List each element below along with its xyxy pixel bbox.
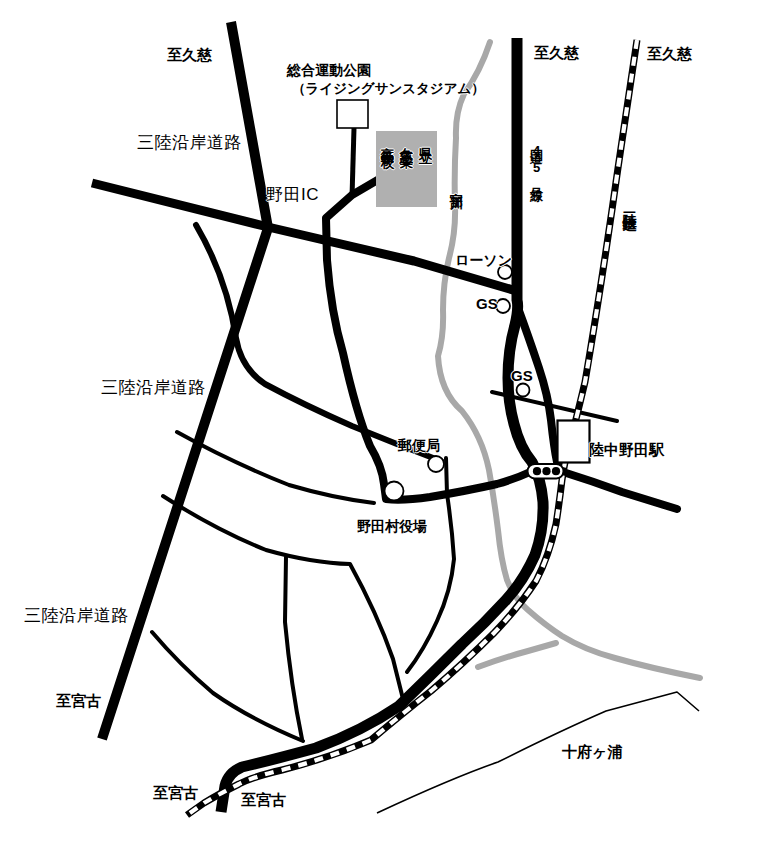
sanriku-road-label-1: 三陸沿岸道路 [137, 134, 242, 152]
gas-station-1-label: GS [476, 296, 498, 312]
station-building-marker [558, 421, 590, 463]
sanriku-railway-label: 三陸鉄道 [621, 201, 639, 209]
village-office-marker [385, 482, 404, 501]
stadium-marker [337, 100, 368, 128]
noda-ic-label: 野田IC [266, 186, 319, 204]
school-name-col3: 高等学校 [378, 136, 397, 207]
sports-park-label-line2: （ライジングサンスタジアム） [292, 82, 485, 96]
route45-label: 国道45号線 [527, 139, 545, 181]
village-office-label: 野田村役場 [357, 519, 427, 534]
post-office-marker [428, 456, 444, 472]
sports-park-label-line1: 総合運動公園 [287, 63, 371, 78]
ubegawa-river-label: 宇部川 [447, 182, 465, 188]
ubegawa-river-branch-path [478, 643, 556, 667]
to-kuji-railway-label: 至久慈 [647, 46, 692, 62]
map-svg [0, 0, 757, 854]
to-kuji-route45-label: 至久慈 [534, 45, 579, 61]
station-east-road-path [560, 471, 677, 509]
village-road-f-path [152, 632, 303, 741]
village-road-a-path [177, 432, 374, 503]
school-name-col1: 県立 [416, 136, 435, 207]
to-miyako-expressway-label: 至宮古 [56, 693, 101, 709]
gas-station-2-label: GS [511, 368, 533, 384]
to-kuji-expressway-label: 至久慈 [167, 47, 212, 63]
rikuchu-noda-station-label: 陸中野田駅 [589, 442, 664, 458]
traffic-signal-icon [528, 464, 564, 479]
tofugaura-label: 十府ヶ浦 [562, 744, 622, 760]
school-destination-box: 県立 久慈工業 高等学校 [376, 131, 437, 207]
noda-area-access-map: 至久慈 三陸沿岸道路 野田IC 総合運動公園 （ライジングサンスタジアム） 至久… [0, 0, 757, 854]
village-road-g-path [285, 557, 302, 739]
stadium-road-path [352, 128, 354, 197]
to-miyako-railway-label: 至宮古 [153, 785, 198, 801]
sanriku-road-label-2: 三陸沿岸道路 [101, 379, 206, 397]
sanriku-road-label-3: 三陸沿岸道路 [24, 607, 129, 625]
ubegawa-river-path [438, 42, 700, 678]
post-office-label: 郵便局 [398, 438, 440, 453]
coastline-path [377, 692, 699, 813]
gas-station-2-marker [517, 384, 530, 397]
gas-station-1-marker [496, 299, 510, 313]
lawson-label: ローソン [455, 253, 512, 268]
school-name-col2: 久慈工業 [397, 136, 416, 207]
to-miyako-route45-label: 至宮古 [241, 792, 286, 808]
